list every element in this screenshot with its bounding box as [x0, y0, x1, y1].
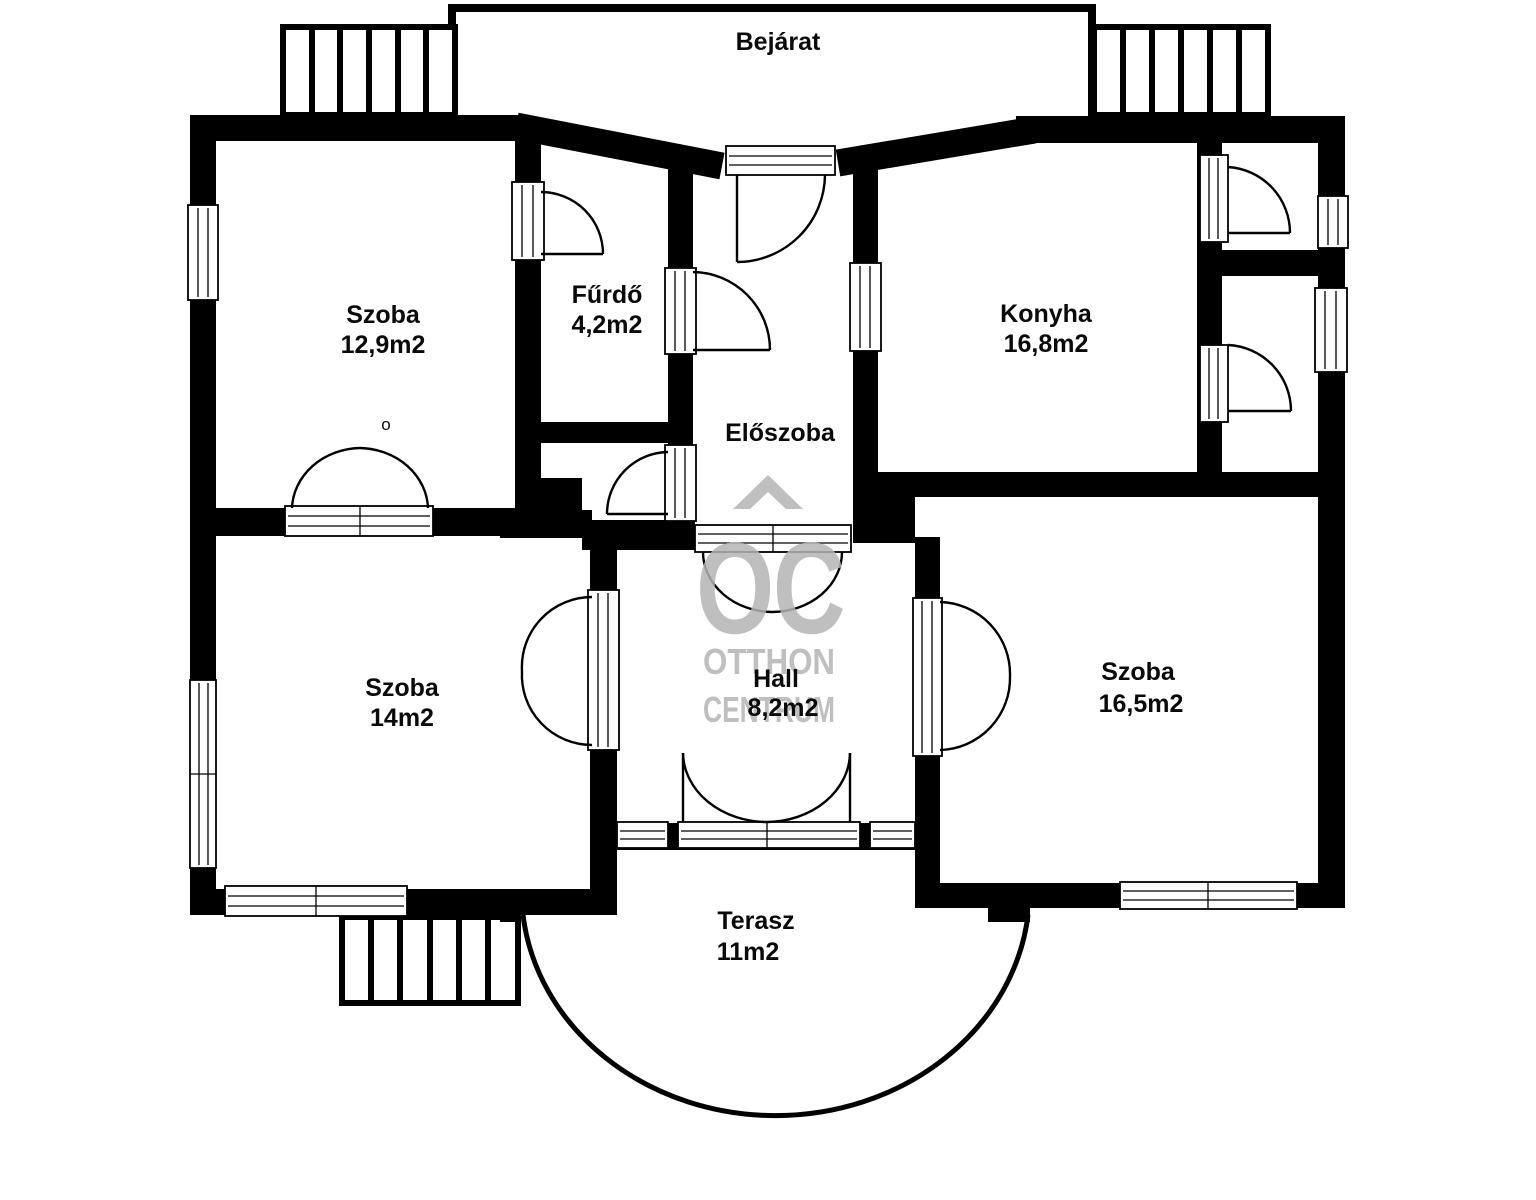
door-frame — [285, 506, 433, 536]
door-arc — [607, 452, 668, 514]
room-area: 16,5m2 — [1099, 690, 1184, 718]
door-arc — [1228, 345, 1291, 411]
room-label-eloszoba: Előszoba — [725, 419, 836, 447]
room-label-szoba-right: Szoba 16,5m2 — [1099, 658, 1184, 718]
room-area: 11m2 — [717, 938, 780, 966]
window — [850, 263, 881, 351]
room-name: Konyha — [1000, 300, 1093, 328]
room-label-szoba-top-left: Szoba 12,9m2 — [341, 301, 426, 359]
room-area: 12,9m2 — [341, 331, 426, 359]
room-name: Terasz — [717, 907, 794, 935]
stairs-hatch-bottom — [342, 917, 518, 1003]
room-name: Hall — [753, 665, 799, 693]
door-arc — [1228, 167, 1290, 233]
door-mark: o — [381, 415, 390, 434]
window — [1318, 196, 1348, 248]
door-frame — [588, 590, 619, 750]
watermark-monogram: OC — [696, 515, 844, 661]
watermark-roof-icon — [733, 475, 803, 509]
stairs-hatch-top-left — [283, 27, 455, 115]
window — [617, 822, 668, 848]
room-area: 8,2m2 — [748, 694, 819, 722]
room-name: Szoba — [365, 674, 440, 702]
room-area: 4,2m2 — [572, 311, 643, 339]
room-label-terasz: Terasz 11m2 — [717, 907, 795, 966]
room-name: Előszoba — [725, 419, 836, 447]
door-frame — [512, 182, 544, 260]
door-frame — [678, 822, 860, 848]
room-name: Szoba — [1101, 658, 1176, 686]
window — [190, 680, 216, 868]
door-arc — [693, 272, 770, 350]
door-frame — [665, 268, 696, 354]
double-door-arc — [522, 597, 592, 745]
room-name: Fűrdő — [572, 281, 643, 309]
door-frame — [913, 598, 942, 756]
entrance-label-text: Bejárat — [736, 28, 821, 56]
room-label-furdo: Fűrdő 4,2m2 — [572, 281, 643, 339]
door-arc — [541, 192, 603, 254]
door-frame — [665, 445, 696, 521]
floor-plan: OC OTTHON CENTRUM Bejárat Szoba 12,9m2 o… — [0, 0, 1536, 1200]
window — [1120, 882, 1297, 909]
window — [870, 822, 915, 848]
room-area: 16,8m2 — [1004, 330, 1089, 358]
room-area: 14m2 — [370, 704, 434, 732]
porch-outline — [452, 8, 1092, 119]
entrance-label: Bejárat — [736, 28, 821, 56]
door-frame — [1200, 345, 1228, 422]
room-label-konyha: Konyha 16,8m2 — [1000, 300, 1093, 358]
room-name: Szoba — [346, 301, 421, 329]
entrance-door-arc — [737, 175, 825, 262]
double-door-arc — [940, 602, 1010, 750]
stairs-hatch-top-right — [1094, 27, 1268, 115]
double-door-arc — [292, 448, 428, 508]
door-frame — [1200, 155, 1228, 242]
window — [1315, 288, 1347, 372]
window — [188, 205, 218, 300]
window — [225, 886, 407, 916]
room-label-szoba-middle-left: Szoba 14m2 — [365, 674, 440, 732]
entrance-door-frame — [726, 146, 835, 175]
double-door-arc — [683, 753, 850, 822]
